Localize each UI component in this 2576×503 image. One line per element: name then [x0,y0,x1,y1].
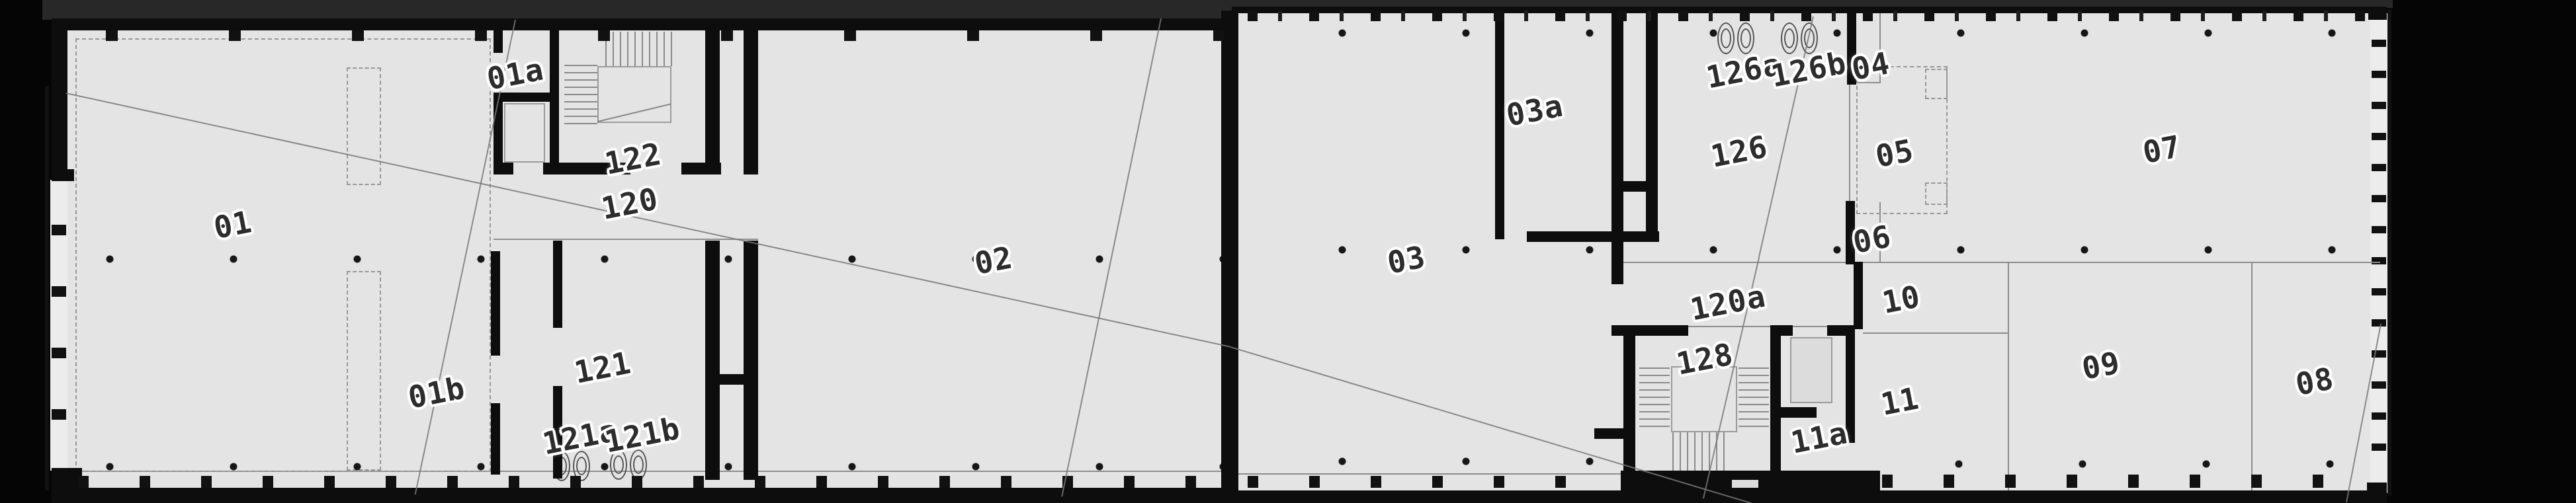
room-01-shaft-outline-upper [347,67,381,185]
wall-left-wing-top [52,19,1232,30]
wc-fixture-126a-1 [1717,22,1735,54]
right-wing-room-split-line [1622,262,2380,263]
wall-01b-lower [491,403,500,475]
wall-core-connector [1611,181,1658,192]
room-label-03: 03 [1385,239,1429,281]
wall-11a-right [1846,325,1855,443]
wall-left-wing-left [52,19,67,181]
room-11a-shaft-outline [1790,337,1832,403]
wall-11a-partition [1777,407,1817,418]
room-label-01: 01 [211,204,255,246]
stair-128-treads-right [1739,368,1769,431]
room-label-04: 04 [1849,45,1893,87]
wall-122-left [550,29,559,174]
wall-shaft-right-upper [744,29,758,174]
column-dots-right-bottom-b [1954,460,2384,469]
wall-shaft-left-lower [705,241,720,480]
room-05-notch-bottom [1925,182,1948,205]
stair-122-treads [564,65,597,124]
facade-teeth-right-bottom-b [1882,475,2372,488]
room-label-07: 07 [2140,128,2184,171]
room-05-notch-top [1925,69,1948,99]
wall-corridor-door-stub [1594,428,1623,439]
wall-left-wing-left-foot [52,169,74,181]
wall-shaft-right-lower [744,241,758,480]
right-wing-bottom-face-line [1238,473,1621,475]
facade-teeth-left-bottom [78,476,1223,488]
room-label-11: 11 [1878,380,1922,422]
column-dots-left-mid [105,255,1230,264]
scan-band-top-left-wing [42,0,1232,20]
wall-shaft-connector [705,374,758,385]
room-01-shaft-outline-lower [347,271,381,471]
left-facade-window-marks [52,225,66,473]
room-label-05: 05 [1873,132,1917,174]
wall-core-right [1646,11,1658,239]
left-facade-outer-line [45,86,49,490]
wall-128-top [1611,325,1688,336]
room-label-08: 08 [2293,360,2337,403]
wall-right-corner-top [2368,8,2387,20]
wall-121-left-upper [553,241,562,328]
stair-122-landing-outline [597,66,671,123]
facade-teeth-right-bottom-a [1248,476,1611,488]
room-label-09: 09 [2079,344,2124,387]
column-dots-left-bottom [105,463,1230,471]
room-label-06: 06 [1850,218,1895,260]
facade-teeth-left-top [106,30,1224,41]
column-dots-right-mid [1338,246,2340,254]
right-facade-window-marks [2372,40,2386,469]
room-05-left-partition-line [1849,85,1850,201]
wall-120a-right [1854,262,1863,329]
room-09-08-divider-line [2251,262,2253,492]
wall-wing-divider [1221,11,1238,493]
wall-shaft-left-upper [705,29,720,174]
room-11-09-divider-line [2008,262,2009,492]
facade-teeth-right-top [1248,11,2372,21]
stair-128-treads-left [1639,368,1670,431]
floor-plan-canvas: 01 01a 01b 02 03 03a 04 05 06 07 08 09 1… [0,0,2576,503]
room-10-11-divider-line [1863,332,2008,334]
wall-03a-bottom [1527,231,1659,242]
column-dots-right-bottom-a [1338,457,1602,466]
column-dots-right-top [1338,29,2340,38]
wall-01a-foot [494,163,513,174]
room-label-10: 10 [1879,278,1924,321]
wall-03a-left [1495,11,1504,239]
room-01a-closet-outline [504,103,545,163]
room-label-02: 02 [972,239,1016,282]
wall-01b-upper [491,251,500,356]
corridor-120-boundary-line [494,239,758,240]
wall-left-wing-bottom [52,488,1232,503]
stair-block-bottom-notch [1732,480,1758,488]
wc-fixture-126a-2 [1737,22,1754,54]
right-facade-outer-line [2387,9,2391,496]
wall-core-left [1611,11,1623,284]
wall-11a-top-left [1770,325,1793,336]
wc-fixture-126b-1 [1781,22,1798,54]
wall-right-corner-bottom [2367,483,2387,494]
